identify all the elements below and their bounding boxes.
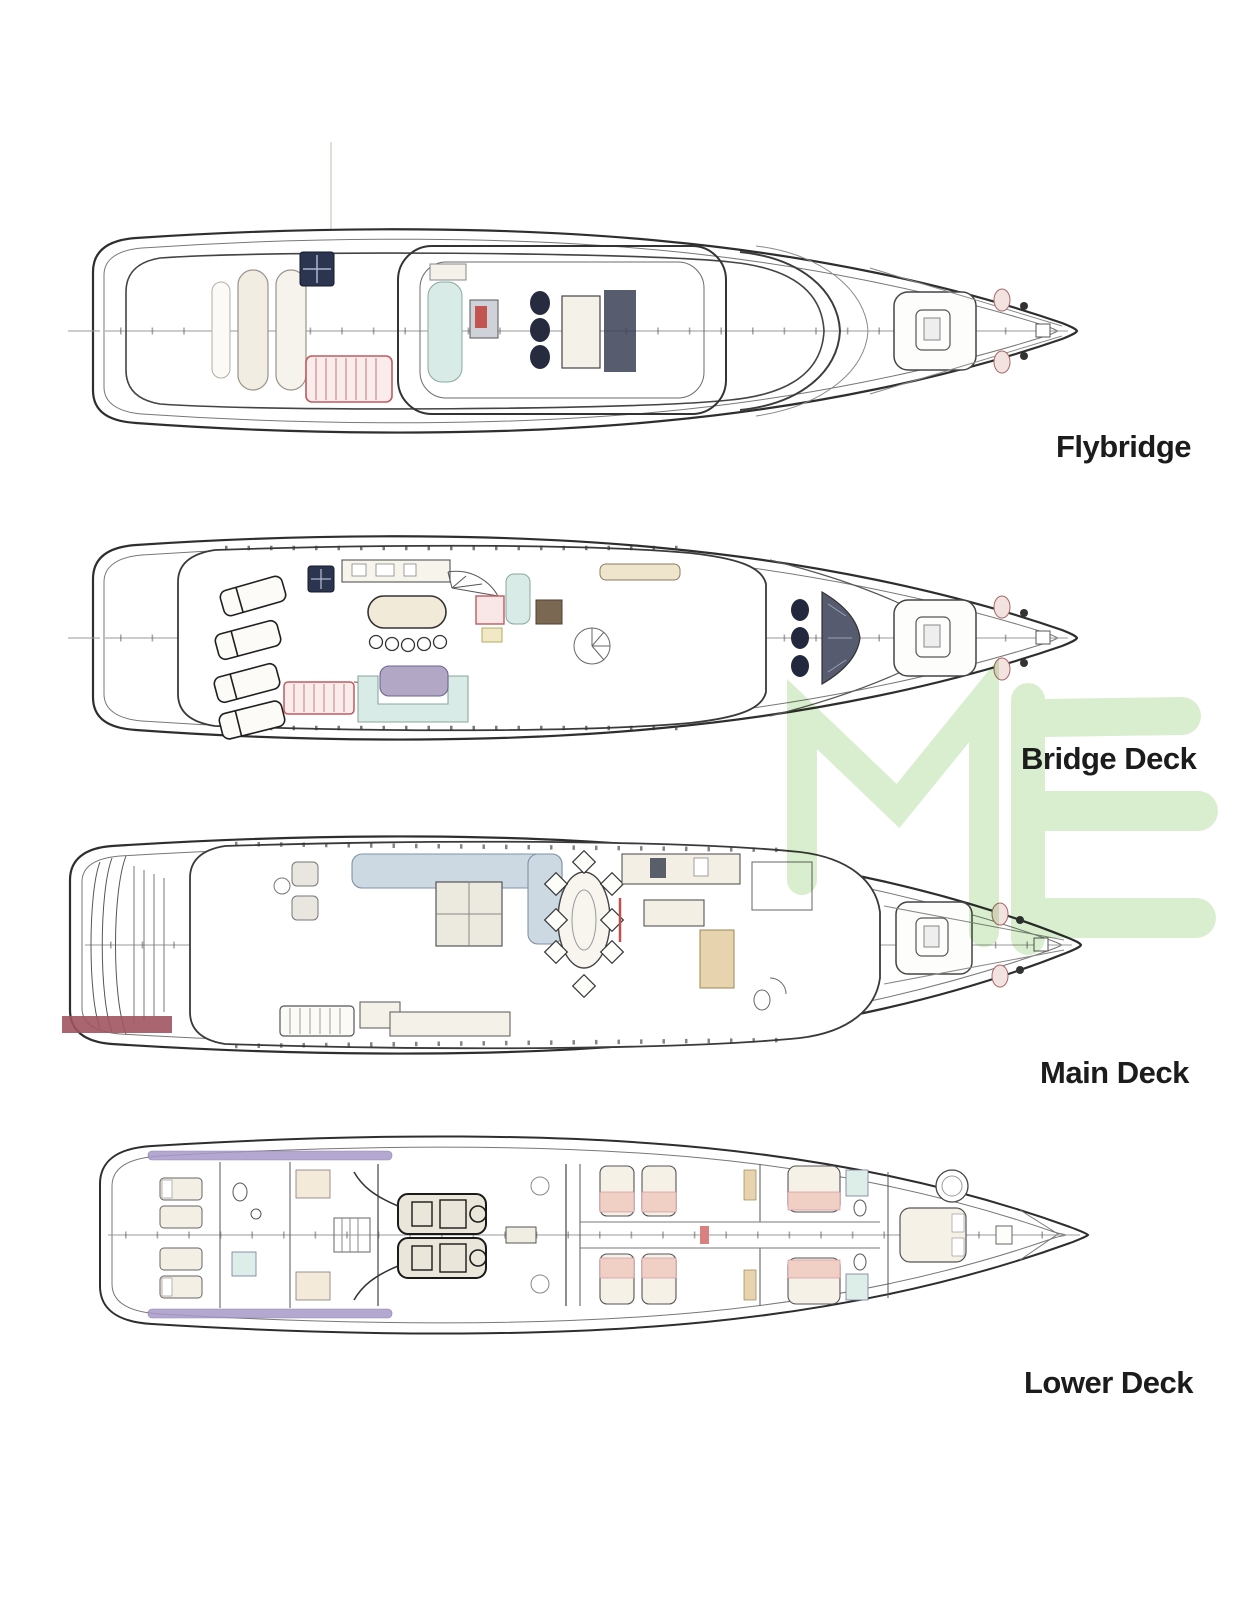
- wardrobe: [744, 1170, 756, 1200]
- sunpads: [212, 270, 306, 390]
- flybridge-table: [562, 296, 600, 368]
- wardrobe: [744, 1270, 756, 1300]
- bench-seat: [604, 290, 636, 372]
- wc: [233, 1183, 247, 1201]
- bridge-deck-plan: [68, 536, 1077, 740]
- main-deck-plan: [62, 836, 1081, 1053]
- foredeck-seating-pod: [896, 902, 972, 974]
- rail-top: [148, 1151, 392, 1160]
- settee: [506, 574, 530, 624]
- pilothouse-settee: [600, 564, 680, 580]
- shower: [232, 1252, 256, 1276]
- armchair: [292, 896, 318, 920]
- yacht-deck-plans-page: Flybridge Bridge Deck Main Deck Lower De…: [0, 0, 1250, 1619]
- mess-seat: [296, 1170, 330, 1198]
- skylight-hatch: [308, 566, 334, 592]
- lower-deck-plan: [100, 1136, 1088, 1333]
- bridge-deck-label: Bridge Deck: [1021, 741, 1196, 777]
- armchair: [292, 862, 318, 886]
- passerelle: [62, 1016, 172, 1033]
- sideboard: [536, 600, 562, 624]
- range: [650, 858, 666, 878]
- tv-cabinet: [390, 1012, 510, 1036]
- cocktail-table: [380, 666, 448, 696]
- skylight-hatch: [300, 252, 334, 286]
- main-deck-label: Main Deck: [1040, 1055, 1189, 1091]
- day-head-wc: [754, 990, 770, 1010]
- flybridge-plan: [68, 229, 1077, 432]
- double-cabin-starboard: [788, 1254, 868, 1304]
- sink: [694, 858, 708, 876]
- shower-round: [936, 1170, 968, 1202]
- double-cabin-port: [788, 1166, 868, 1216]
- crew-bunk: [160, 1206, 202, 1228]
- crew-bunk: [160, 1248, 202, 1270]
- flybridge-label: Flybridge: [1056, 429, 1191, 465]
- door-accent: [700, 1226, 709, 1244]
- rail-bottom: [148, 1309, 392, 1318]
- bow-locker: [996, 1226, 1012, 1244]
- locker: [482, 628, 502, 642]
- pantry: [700, 930, 734, 988]
- lower-deck-label: Lower Deck: [1024, 1365, 1193, 1401]
- galley-island: [644, 900, 704, 926]
- aft-staircase: [306, 356, 392, 402]
- generator: [506, 1227, 536, 1243]
- watermark-letter-e-arm-top: [1046, 716, 1182, 718]
- foredeck-seating-pod: [894, 292, 976, 370]
- mess-seat: [296, 1272, 330, 1300]
- pantry-cabinet: [476, 596, 504, 624]
- foredeck-seating-pod: [894, 600, 976, 676]
- sink: [251, 1209, 261, 1219]
